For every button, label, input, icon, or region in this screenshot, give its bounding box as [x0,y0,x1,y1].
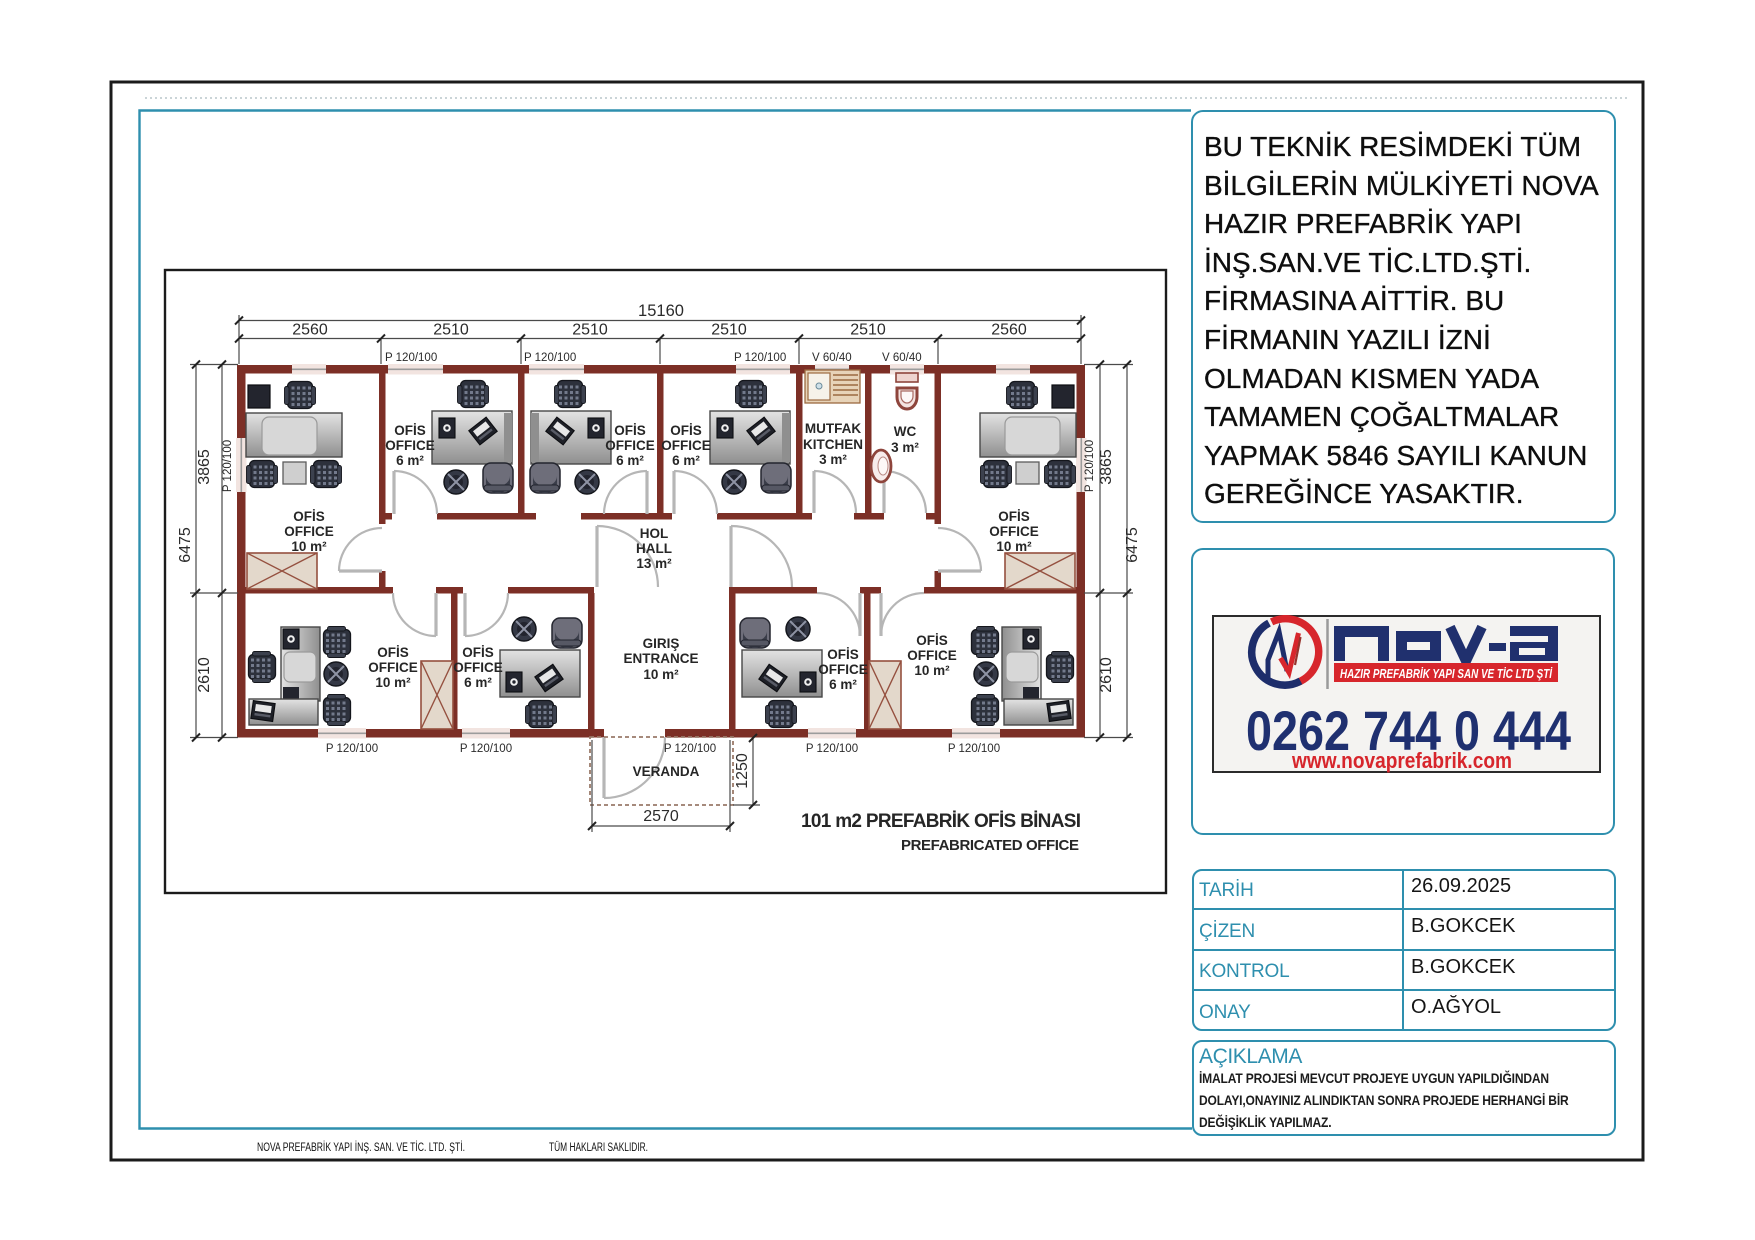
svg-text:P 120/100: P 120/100 [524,352,576,364]
svg-text:PREFABRICATED OFFICE: PREFABRICATED OFFICE [901,837,1079,854]
svg-text:6 m²: 6 m² [396,453,424,468]
svg-text:OFFICE: OFFICE [284,524,334,539]
svg-text:WC: WC [894,424,917,439]
svg-text:2560: 2560 [292,322,328,339]
svg-text:P 120/100: P 120/100 [385,352,437,364]
svg-text:6 m²: 6 m² [464,675,492,690]
svg-text:2570: 2570 [643,808,679,825]
svg-text:10 m²: 10 m² [914,663,950,678]
svg-text:6 m²: 6 m² [672,453,700,468]
svg-text:OFİS: OFİS [394,423,426,438]
svg-text:OFİS: OFİS [614,423,646,438]
svg-text:2510: 2510 [850,322,886,339]
svg-text:OFİS: OFİS [377,645,409,660]
svg-text:1250: 1250 [734,753,751,789]
svg-text:www.novaprefabrik.com: www.novaprefabrik.com [1291,748,1512,773]
svg-text:P 120/100: P 120/100 [1084,440,1096,492]
svg-text:MUTFAK: MUTFAK [805,421,861,436]
svg-text:2560: 2560 [991,322,1027,339]
svg-text:3 m²: 3 m² [891,440,919,455]
svg-text:OFİS: OFİS [916,633,948,648]
svg-text:6 m²: 6 m² [616,453,644,468]
svg-text:2510: 2510 [433,322,469,339]
svg-text:P 120/100: P 120/100 [948,743,1000,755]
svg-text:10 m²: 10 m² [291,539,327,554]
svg-text:P 120/100: P 120/100 [326,743,378,755]
svg-text:OFİS: OFİS [670,423,702,438]
svg-text:NOVA PREFABRİK YAPI İNŞ. SAN.: NOVA PREFABRİK YAPI İNŞ. SAN. VE TİC. LT… [257,1141,465,1154]
svg-text:OFİS: OFİS [293,509,325,524]
svg-text:OFFICE: OFFICE [989,524,1039,539]
svg-text:6475: 6475 [1124,527,1141,563]
svg-text:OFİS: OFİS [998,509,1030,524]
svg-text:15160: 15160 [638,302,684,320]
svg-text:P 120/100: P 120/100 [806,743,858,755]
svg-text:6 m²: 6 m² [829,677,857,692]
svg-text:13 m²: 13 m² [636,556,672,571]
svg-text:2610: 2610 [196,657,213,693]
svg-text:P 120/100: P 120/100 [222,440,234,492]
svg-text:GIRIŞ: GIRIŞ [643,636,680,651]
svg-text:OFFICE: OFFICE [605,438,655,453]
svg-text:10 m²: 10 m² [996,539,1032,554]
svg-text:OFFICE: OFFICE [453,660,503,675]
svg-text:P 120/100: P 120/100 [664,743,716,755]
svg-text:OFFICE: OFFICE [661,438,711,453]
svg-text:TÜM HAKLARI SAKLIDIR.: TÜM HAKLARI SAKLIDIR. [549,1142,648,1154]
svg-text:10 m²: 10 m² [643,667,679,682]
svg-text:OFFICE: OFFICE [818,662,868,677]
svg-text:P 120/100: P 120/100 [460,743,512,755]
svg-text:V 60/40: V 60/40 [882,352,922,364]
svg-text:KITCHEN: KITCHEN [803,437,863,452]
svg-text:6475: 6475 [177,527,194,563]
svg-text:3 m²: 3 m² [819,452,847,467]
svg-text:OFİS: OFİS [827,647,859,662]
svg-text:VERANDA: VERANDA [633,764,700,779]
svg-text:2610: 2610 [1098,657,1115,693]
svg-text:OFİS: OFİS [462,645,494,660]
svg-text:2510: 2510 [572,322,608,339]
svg-text:HAZIR PREFABRİK YAPI SAN VE Tİ: HAZIR PREFABRİK YAPI SAN VE TİC LTD ŞTİ [1340,666,1553,681]
svg-text:3865: 3865 [1098,449,1115,485]
svg-text:ENTRANCE: ENTRANCE [623,651,698,666]
svg-text:101 m2 PREFABRİK OFİS BİNASI: 101 m2 PREFABRİK OFİS BİNASI [801,811,1081,832]
svg-text:OFFICE: OFFICE [907,648,957,663]
svg-text:HALL: HALL [636,541,672,556]
svg-text:HOL: HOL [640,526,669,541]
svg-text:OFFICE: OFFICE [385,438,435,453]
svg-text:10 m²: 10 m² [375,675,411,690]
svg-text:3865: 3865 [196,449,213,485]
svg-text:2510: 2510 [711,322,747,339]
svg-text:V 60/40: V 60/40 [812,352,852,364]
svg-text:P 120/100: P 120/100 [734,352,786,364]
svg-text:OFFICE: OFFICE [368,660,418,675]
